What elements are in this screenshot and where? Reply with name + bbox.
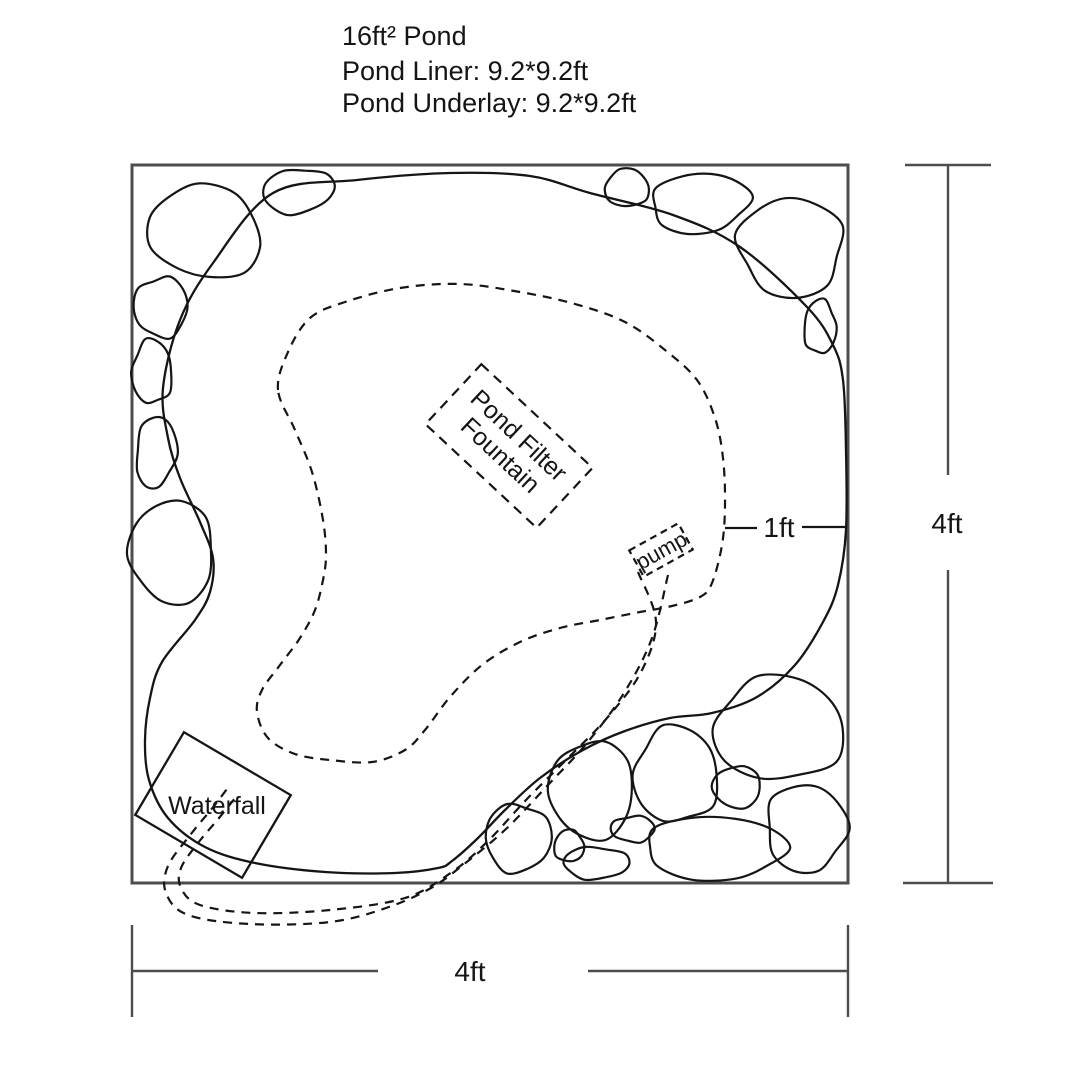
waterfall-label: Waterfall (168, 792, 266, 820)
diagram-canvas: 16ft² Pond Pond Liner: 9.2*9.2ft Pond Un… (0, 0, 1080, 1080)
pond-shelf-outline (257, 284, 725, 763)
width-dimension: 4ft (132, 925, 848, 1017)
width-dim-label: 4ft (454, 956, 485, 987)
rock (134, 276, 188, 339)
rock (633, 724, 718, 821)
pond-edge (145, 173, 847, 874)
pond-plan-diagram: 16ft² Pond Pond Liner: 9.2*9.2ft Pond Un… (0, 0, 1080, 1080)
title-line-3: Pond Underlay: 9.2*9.2ft (342, 88, 637, 118)
title-line-2: Pond Liner: 9.2*9.2ft (342, 56, 589, 86)
pond-shelf-edge (257, 284, 725, 763)
rock (713, 674, 844, 779)
excavation-boundary (132, 165, 848, 883)
title-line-1: 16ft² Pond (342, 21, 467, 51)
pump-box: pump (629, 523, 693, 576)
rock (735, 198, 844, 298)
pond-filter-fountain-box: Pond Filter Fountain (425, 364, 592, 528)
height-dim-label: 4ft (931, 508, 962, 539)
pond-outline (145, 173, 847, 874)
gap-label: 1ft (763, 512, 794, 543)
rock (147, 183, 260, 277)
rock (605, 168, 649, 206)
rock (611, 816, 655, 843)
rock (653, 174, 753, 234)
title-block: 16ft² Pond Pond Liner: 9.2*9.2ft Pond Un… (342, 21, 637, 118)
rock (563, 847, 629, 880)
rock (768, 785, 849, 873)
rock (712, 766, 760, 809)
height-dimension: 4ft (903, 165, 993, 883)
edge-gap-annotation: 1ft (725, 512, 845, 543)
edge-rocks (127, 168, 850, 881)
rock (548, 741, 632, 841)
